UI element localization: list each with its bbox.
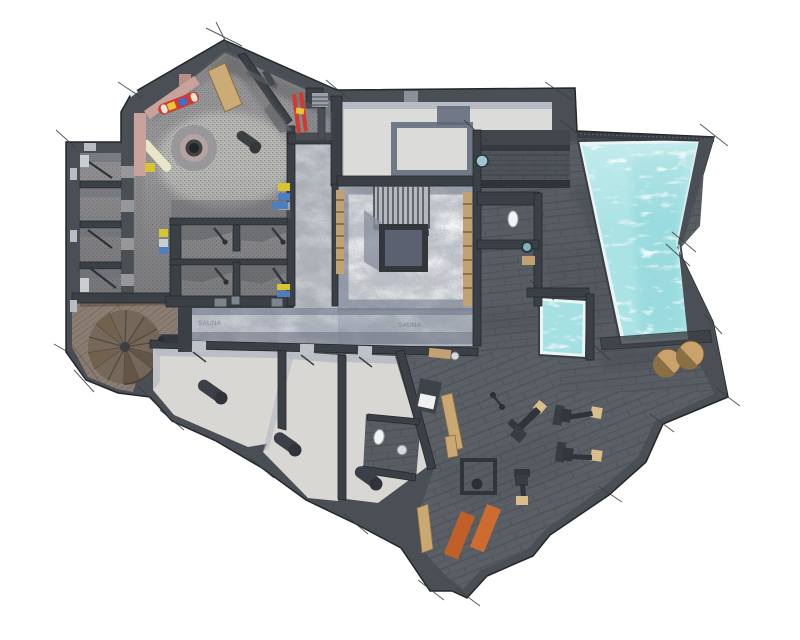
svg-text:SAUNA: SAUNA bbox=[398, 322, 421, 329]
svg-text:SAUNA: SAUNA bbox=[198, 320, 221, 327]
